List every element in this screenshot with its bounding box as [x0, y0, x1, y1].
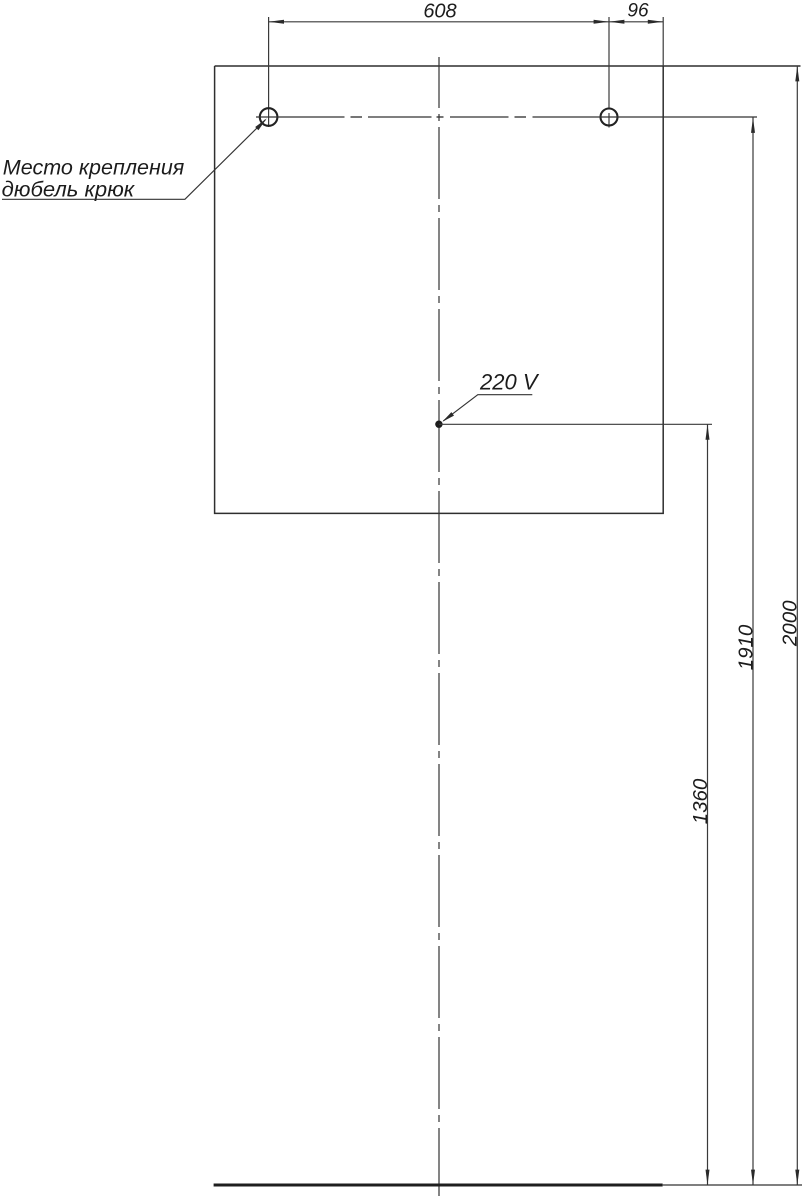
svg-text:2000: 2000	[778, 600, 801, 647]
svg-text:608: 608	[423, 0, 456, 22]
svg-text:дюбель крюк: дюбель крюк	[2, 179, 136, 202]
svg-text:96: 96	[627, 1, 649, 22]
svg-text:1910: 1910	[734, 624, 757, 670]
svg-text:220 V: 220 V	[479, 370, 540, 395]
svg-text:1360: 1360	[689, 778, 712, 824]
svg-text:Место крепления: Место крепления	[3, 157, 184, 180]
